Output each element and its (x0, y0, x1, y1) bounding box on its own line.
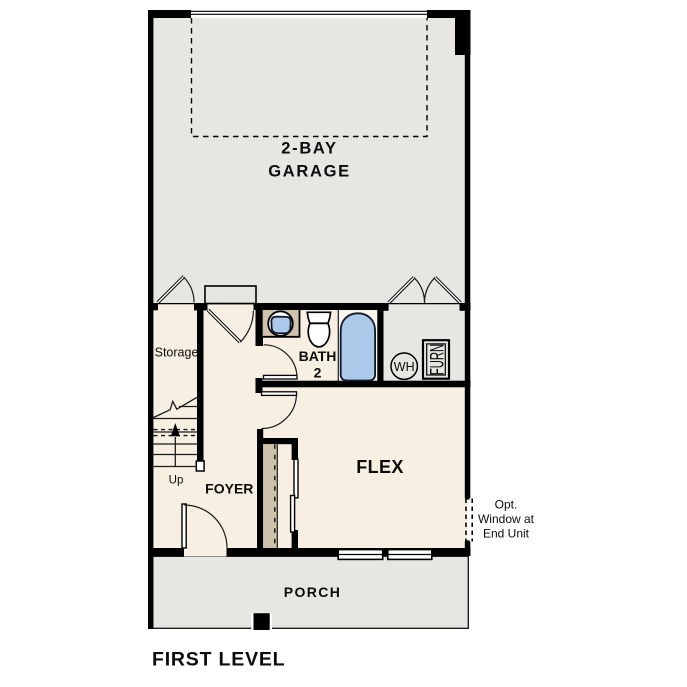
svg-text:WH: WH (394, 360, 415, 374)
svg-text:Up: Up (169, 475, 184, 487)
svg-text:Storage: Storage (155, 345, 199, 359)
svg-text:2-BAY: 2-BAY (281, 140, 338, 158)
svg-text:Opt.: Opt. (495, 498, 518, 512)
svg-text:2: 2 (314, 365, 322, 381)
svg-text:FLEX: FLEX (356, 457, 404, 477)
svg-text:GARAGE: GARAGE (268, 163, 351, 181)
svg-text:Window at: Window at (478, 512, 535, 526)
svg-text:FURN: FURN (426, 344, 448, 375)
svg-text:PORCH: PORCH (284, 584, 342, 600)
svg-text:BATH: BATH (299, 348, 337, 364)
svg-text:FIRST LEVEL: FIRST LEVEL (152, 649, 285, 671)
svg-text:FOYER: FOYER (205, 481, 253, 497)
svg-text:End Unit: End Unit (483, 527, 530, 541)
